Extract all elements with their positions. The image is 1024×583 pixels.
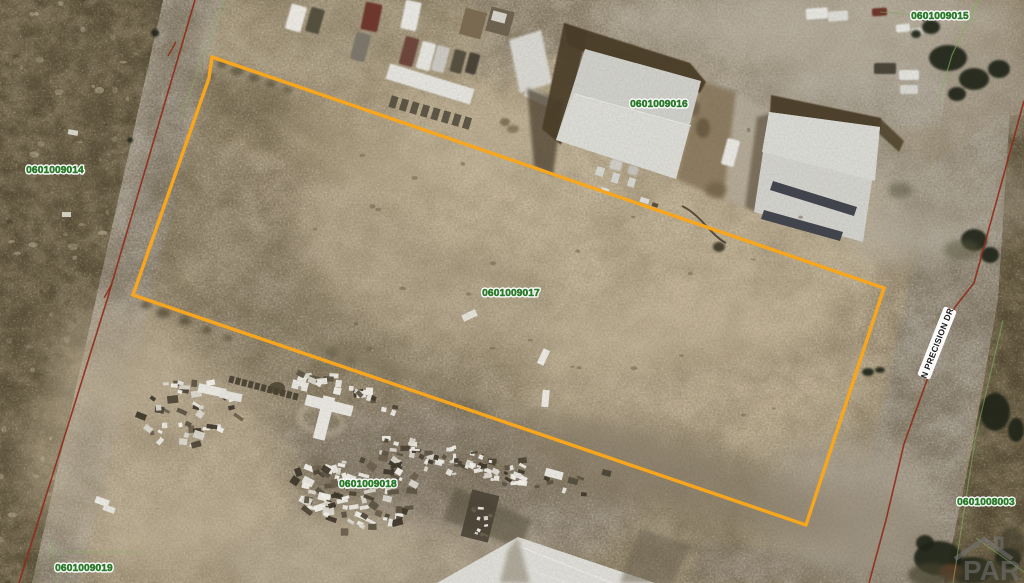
svg-text:0601009014: 0601009014 <box>26 165 84 176</box>
svg-text:0601008003: 0601008003 <box>957 497 1015 508</box>
svg-text:0601009017: 0601009017 <box>482 288 540 299</box>
svg-text:0601009016: 0601009016 <box>630 99 688 110</box>
svg-text:PAR: PAR <box>963 555 1020 583</box>
svg-text:0601009015: 0601009015 <box>911 11 969 22</box>
svg-text:0601009019: 0601009019 <box>55 563 113 574</box>
svg-text:0601009018: 0601009018 <box>339 479 397 490</box>
